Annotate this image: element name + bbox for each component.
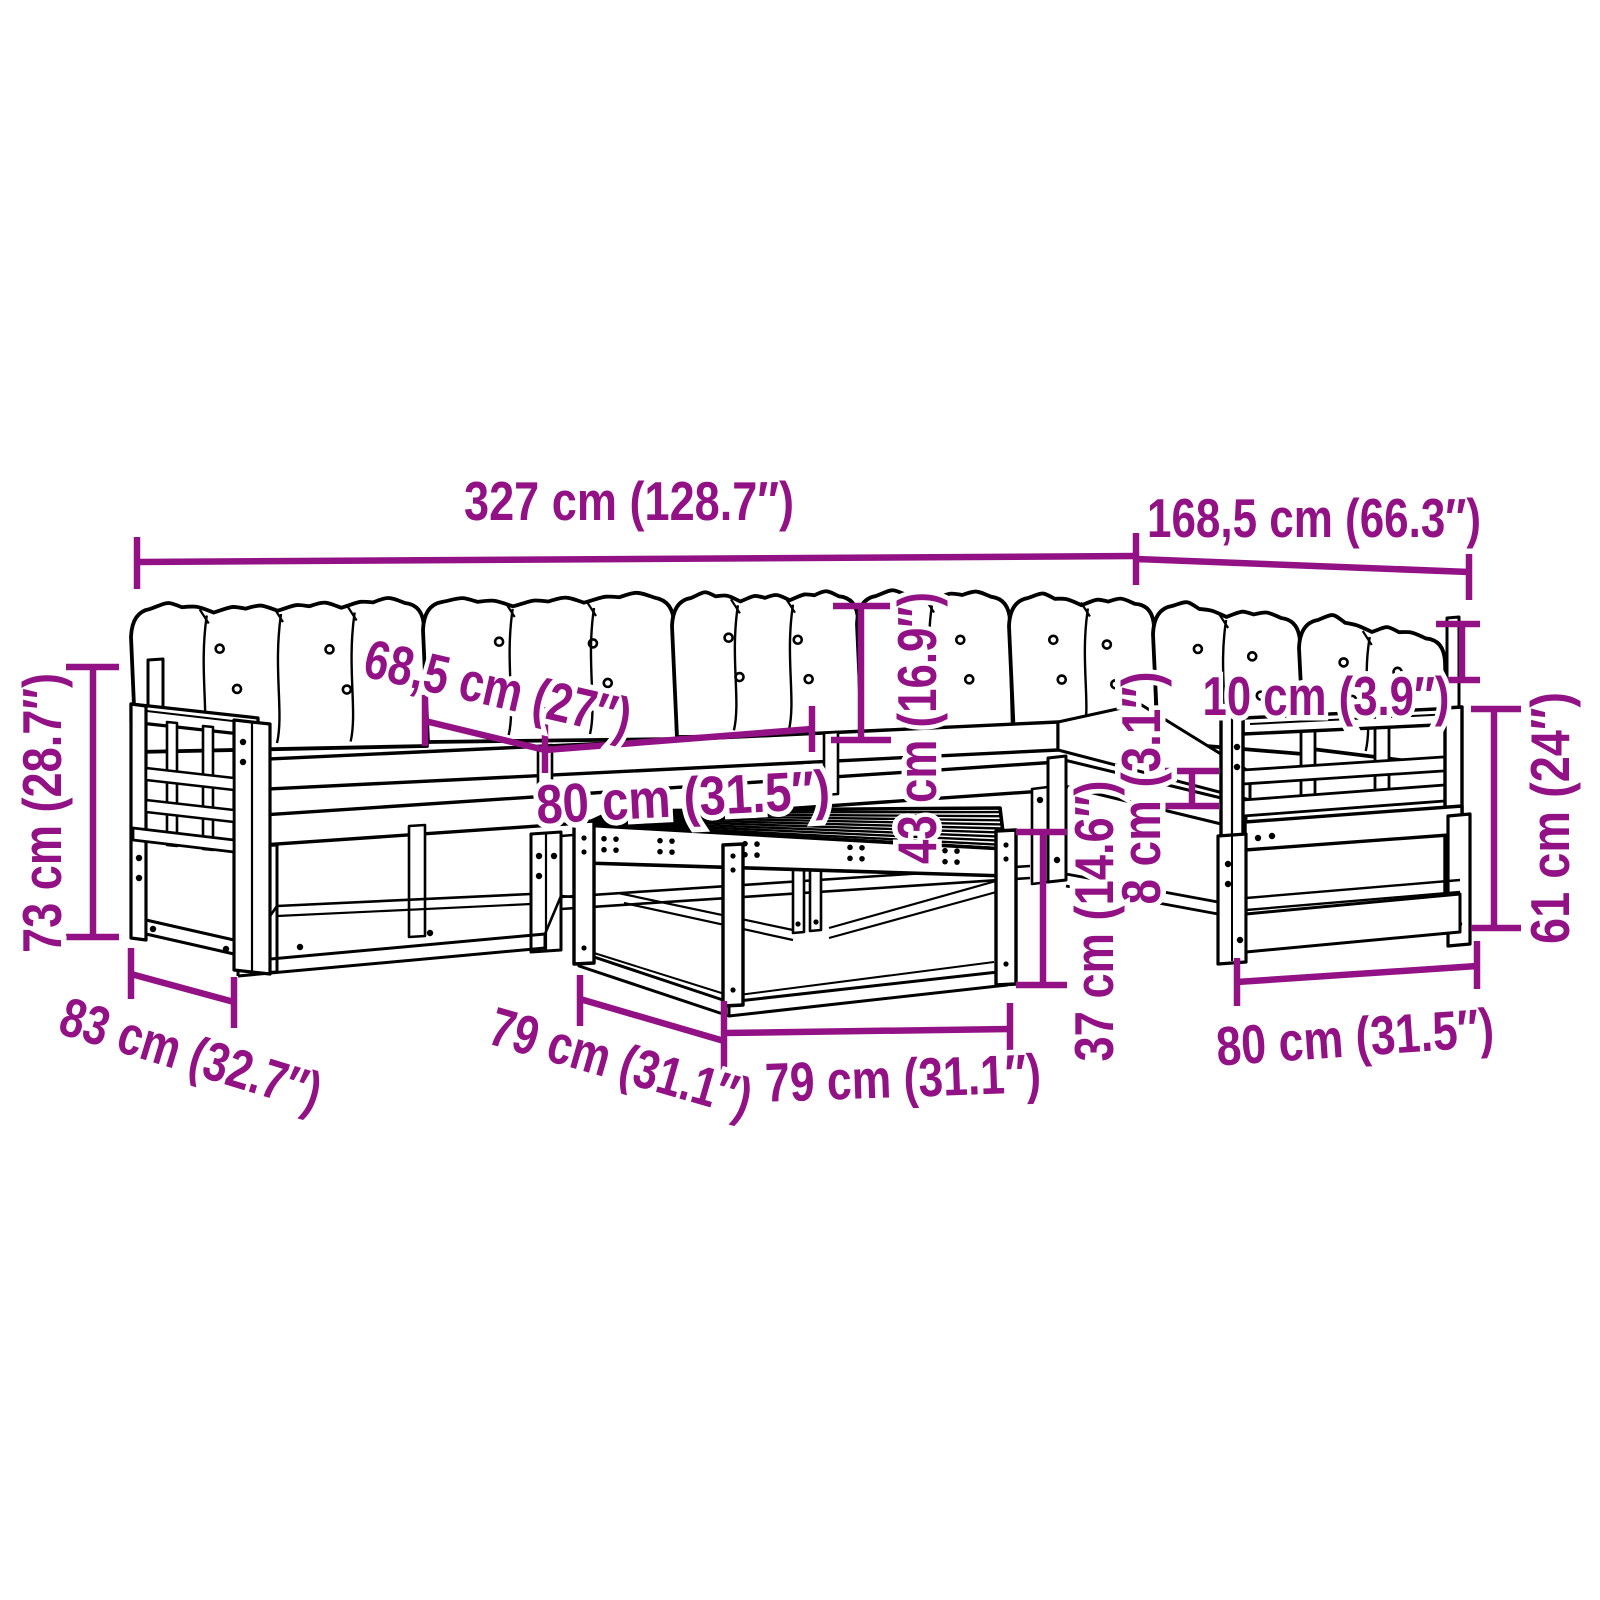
svg-text:79 cm (31.1″): 79 cm (31.1″)	[764, 1042, 1042, 1114]
svg-text:43 cm (16.9″): 43 cm (16.9″)	[886, 592, 948, 864]
svg-text:61 cm (24″): 61 cm (24″)	[1519, 692, 1581, 944]
svg-text:327 cm (128.7″): 327 cm (128.7″)	[464, 470, 794, 532]
svg-text:37 cm (14.6″): 37 cm (14.6″)	[1063, 781, 1125, 1062]
svg-text:168,5 cm (66.3″): 168,5 cm (66.3″)	[1147, 487, 1481, 549]
svg-text:10 cm (3.9″): 10 cm (3.9″)	[1203, 665, 1450, 727]
svg-text:73 cm (28.7″): 73 cm (28.7″)	[11, 673, 73, 953]
